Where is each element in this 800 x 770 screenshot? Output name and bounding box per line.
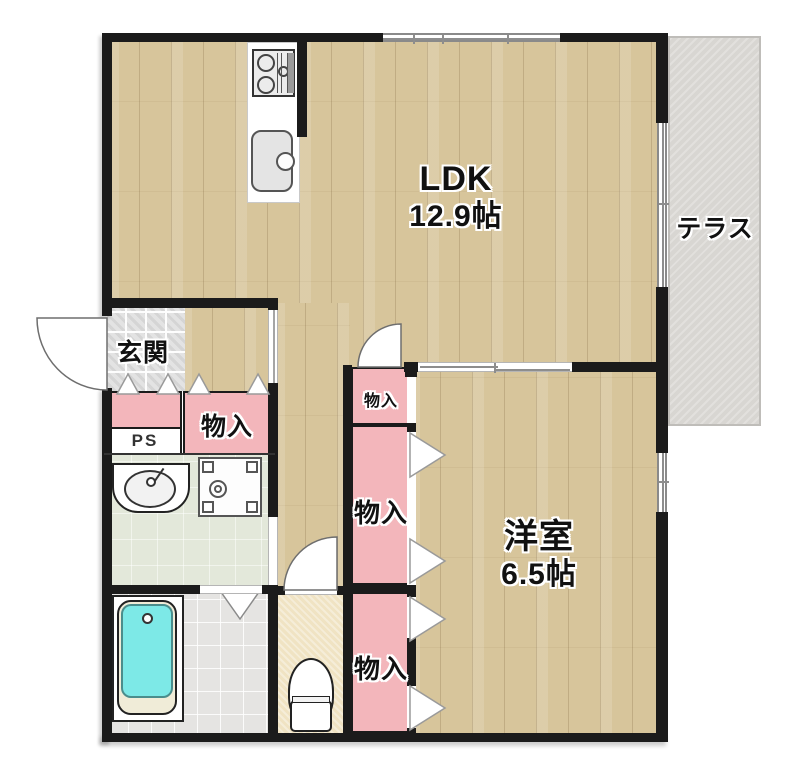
faucet-icon bbox=[276, 152, 295, 171]
outer-wall-right-top bbox=[656, 33, 668, 123]
floor-plan: LDK 12.9帖 テラス 玄関 PS 物入 物入 物入 物入 洋室 6.5帖 bbox=[0, 0, 800, 770]
ldk-size: 12.9帖 bbox=[366, 198, 546, 236]
kitchen-wall-stub bbox=[297, 33, 307, 137]
closet-hall-label: 物入 bbox=[177, 407, 277, 443]
closet-lower-label: 物入 bbox=[331, 649, 431, 686]
stove-icon bbox=[252, 49, 295, 97]
closet-lower-door-triangle bbox=[408, 684, 448, 732]
outer-wall-right-mid bbox=[656, 287, 668, 453]
window-western-room bbox=[657, 453, 667, 512]
window-top bbox=[383, 33, 560, 42]
outer-wall-top-left bbox=[102, 33, 383, 42]
tub-drain-icon bbox=[142, 613, 153, 624]
genkan-label: 玄関 bbox=[93, 333, 193, 369]
closet-hall-door-triangle bbox=[245, 372, 271, 396]
shoe-cabinet-door-triangle bbox=[115, 372, 141, 396]
wall-d-stub bbox=[404, 362, 418, 372]
washbasin bbox=[112, 463, 190, 513]
closet-middle-door-triangle bbox=[408, 537, 448, 585]
western-room-size: 6.5帖 bbox=[449, 556, 629, 594]
washroom-top-line bbox=[104, 453, 275, 455]
toilet-seat-line bbox=[292, 696, 330, 703]
closet-lower-door-triangle bbox=[408, 595, 448, 643]
closet-middle-label: 物入 bbox=[331, 493, 431, 530]
bath-top-wall bbox=[102, 585, 200, 594]
sliding-door-western-room bbox=[418, 362, 572, 372]
western-room-label: 洋室 6.5帖 bbox=[449, 518, 629, 594]
shoe-cabinet-door-triangle bbox=[155, 372, 181, 396]
window-ldk-right bbox=[657, 123, 667, 287]
opening-bath-door bbox=[200, 585, 262, 594]
outer-wall-right-bottom bbox=[656, 512, 668, 742]
closet-middle-door-triangle bbox=[408, 431, 448, 479]
ldk-name: LDK bbox=[366, 160, 546, 198]
closet-small-door-arc bbox=[352, 318, 406, 371]
closet-small-label: 物入 bbox=[341, 387, 421, 411]
toilet-tank bbox=[290, 700, 332, 732]
washing-machine-pan bbox=[198, 457, 262, 517]
wall-bath-toilet bbox=[268, 594, 278, 733]
outer-wall-bottom bbox=[102, 733, 668, 742]
ldk-label: LDK 12.9帖 bbox=[366, 160, 546, 236]
bath-top-stub bbox=[262, 585, 273, 594]
wall-d-right bbox=[572, 362, 656, 372]
opening-washroom-door bbox=[268, 517, 278, 585]
wall-a-mid bbox=[268, 383, 278, 517]
bathtub bbox=[112, 595, 184, 722]
outer-wall-top-right bbox=[560, 33, 668, 42]
ps-label: PS bbox=[108, 431, 182, 451]
bath-folding-door bbox=[218, 590, 262, 622]
closet-divider-wall bbox=[343, 585, 416, 594]
terrace-label: テラス bbox=[664, 209, 766, 245]
toilet-door-arc bbox=[280, 532, 342, 594]
western-room-name: 洋室 bbox=[449, 518, 629, 556]
shoe-cabinet bbox=[108, 391, 182, 429]
hall-top-wall bbox=[102, 298, 273, 308]
closet-hall-door-triangle bbox=[186, 372, 212, 396]
outer-wall-left-upper bbox=[102, 33, 112, 316]
